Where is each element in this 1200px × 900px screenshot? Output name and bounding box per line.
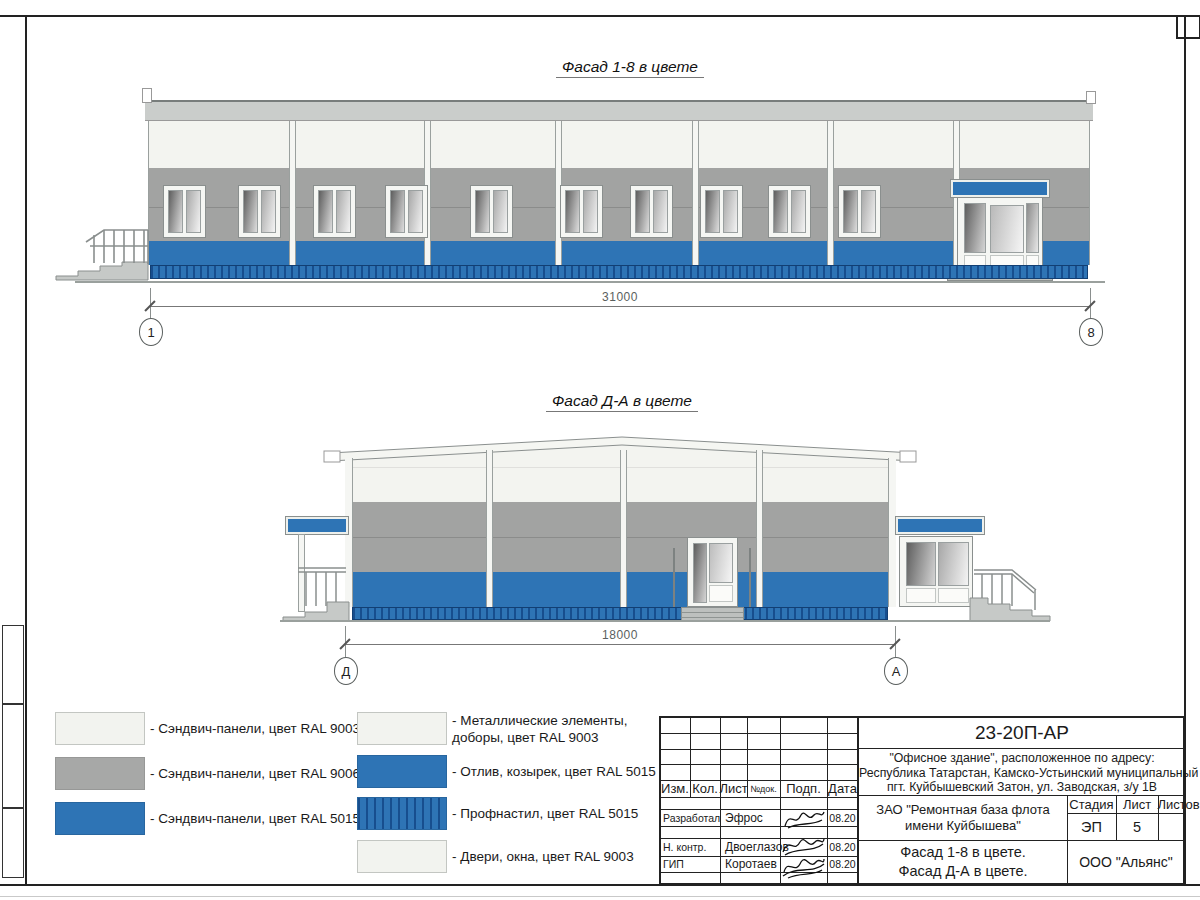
sheet-value: 5 (1116, 813, 1158, 840)
axis-circle-a: А (884, 657, 908, 685)
wall-pillar (620, 450, 627, 607)
legend-swatch-white (55, 712, 145, 745)
entrance-door-glass (990, 205, 1024, 253)
roof-post-left (142, 88, 152, 103)
window (163, 185, 206, 238)
column-header: №док. (747, 780, 780, 797)
porch-left-canopy (286, 517, 348, 534)
facade1-title: Фасад 1-8 в цвете (470, 58, 790, 76)
facade2-title-text: Фасад Д-А в цвете (546, 392, 698, 412)
wall-pillar (289, 121, 296, 265)
legend-label: - Сэндвич-панели, цвет RAL 9006 (150, 757, 360, 790)
project-address: "Офисное здание", расположенное по адрес… (859, 751, 1185, 795)
titleblock-cell: 08.20 (827, 809, 858, 826)
wall-pillar (827, 121, 834, 265)
stage-value: ЭП (1067, 813, 1116, 840)
legend-swatch-white (357, 712, 447, 745)
roof-post-right (1086, 91, 1096, 104)
legend-label: - Профнастил, цвет RAL 5015 (452, 797, 638, 830)
doc-number: 23-20П-АР (859, 717, 1185, 748)
corner-column-right (888, 458, 896, 607)
porch-right-glazing (899, 536, 973, 607)
facade2-plinth (352, 607, 888, 620)
facade1-plinth (150, 265, 1088, 279)
titleblock-cell: Двоеглазов (722, 838, 781, 856)
wall-pillar (756, 450, 763, 607)
door-sidelight (693, 543, 707, 603)
column-header: Подп. (780, 780, 827, 797)
facade2-title: Фасад Д-А в цвете (462, 392, 782, 410)
corner-stamp-box (1176, 15, 1200, 39)
legend-swatch-blue (55, 802, 145, 835)
axis-circle-d: Д (334, 657, 358, 685)
frame-left (25, 15, 27, 886)
window (313, 185, 356, 238)
titleblock-cell: Эфрос (722, 809, 781, 826)
window (238, 185, 281, 238)
column-header: Лист (720, 780, 747, 797)
dim-18000: 18000 (580, 628, 660, 642)
column-header: Кол. (690, 780, 720, 797)
dim-31000: 31000 (580, 290, 660, 304)
wall-pillar (486, 450, 493, 607)
stage-label: Стадия (1067, 795, 1116, 813)
ground-line-facade2 (280, 620, 1050, 622)
axis-circle-8: 8 (1079, 318, 1103, 346)
entrance-canopy (951, 180, 1049, 197)
column-header: Изм. (660, 780, 690, 797)
titleblock-cell: Коротаев (722, 856, 781, 872)
window (470, 185, 513, 238)
door-glass (709, 543, 733, 583)
window (385, 185, 428, 238)
porch-right-canopy (896, 517, 984, 534)
door-handrail-left (673, 548, 675, 607)
wall-pillar (692, 121, 699, 265)
window (768, 185, 811, 238)
legend-label: - Сэндвич-панели, цвет RAL 5015 (150, 802, 360, 835)
ground-line-facade1 (75, 281, 1105, 283)
entrance-sidelight-right (1026, 203, 1039, 253)
window (700, 185, 743, 238)
legend-swatch-blue (357, 755, 447, 788)
door-handrail-right (749, 548, 751, 607)
sheet-label: Лист (1116, 795, 1158, 813)
column-header: Дата (827, 780, 858, 797)
legend-swatch-gray (55, 757, 145, 790)
client-name: ЗАО "Ремонтная база флотаимени Куйбышева… (859, 795, 1067, 840)
window (838, 185, 881, 238)
legend-label: - Отлив, козырек, цвет RAL 5015 (452, 755, 656, 788)
facade1-title-text: Фасад 1-8 в цвете (556, 58, 704, 78)
porch-window-right (938, 542, 969, 586)
door-steps (681, 607, 744, 621)
signature-3 (780, 852, 826, 880)
titleblock-cell: 08.20 (827, 838, 858, 856)
sheet-title: Фасад 1-8 в цвете.Фасад Д-А в цвете. (859, 840, 1067, 884)
signature-1 (782, 806, 826, 832)
titleblock-cell: ГИП (660, 856, 721, 872)
titleblock-cell: 08.20 (827, 856, 858, 872)
legend-label: - Металлические элементы, доборы, цвет R… (452, 712, 627, 745)
facade2-door (687, 537, 738, 607)
axis-circle-1: 1 (139, 318, 163, 346)
margin-box-2 (2, 703, 24, 809)
porch-window-left (906, 542, 936, 586)
company-name: ООО "Альянс" (1067, 840, 1185, 884)
window (560, 185, 603, 238)
entrance-sidelight-left (964, 203, 986, 253)
drawing-sheet: Фасад 1-8 в цвете (0, 0, 1200, 900)
titleblock-cell: Разработал (660, 809, 721, 826)
sheets-label: Листов (1158, 795, 1199, 813)
stairs-left (48, 222, 152, 284)
parapet (145, 100, 1093, 121)
legend-swatch-corrugated (357, 797, 447, 830)
margin-box-1 (2, 625, 24, 705)
titleblock-cell: Н. контр. (660, 838, 721, 856)
legend-label: - Сэндвич-панели, цвет RAL 9003 (150, 712, 360, 745)
frame-top (0, 15, 1200, 17)
entrance-glazing (957, 197, 1043, 268)
legend-swatch-white (357, 840, 447, 873)
legend-label: - Двери, окна, цвет RAL 9003 (452, 840, 634, 873)
sheet-bottom-edge (0, 896, 1200, 897)
window (630, 185, 673, 238)
margin-box-3 (2, 807, 24, 878)
